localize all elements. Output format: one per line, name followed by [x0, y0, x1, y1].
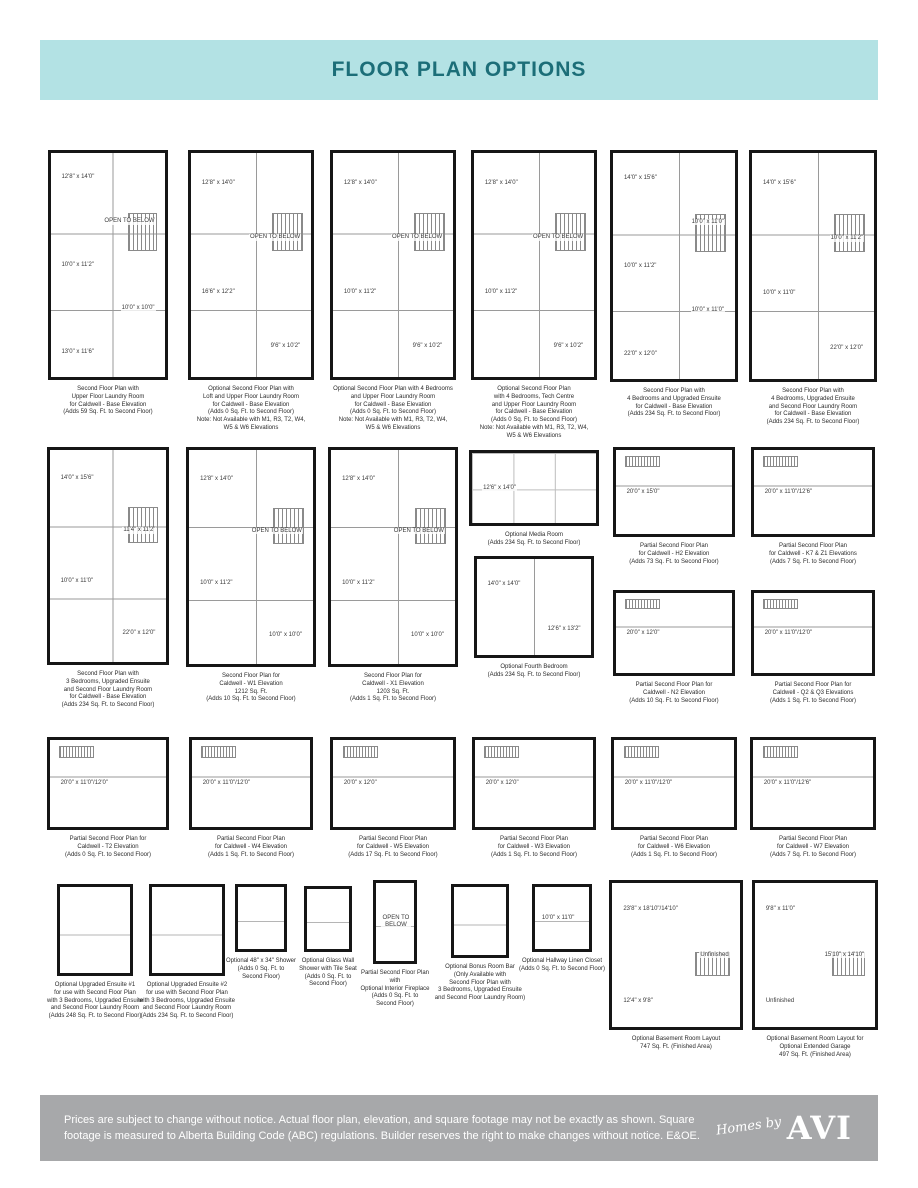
room-dimension-label: 20'0" x 12'0" — [626, 630, 661, 637]
floor-plan-caption: Partial Second Floor Plan for Caldwell -… — [322, 836, 464, 859]
floor-plan-caption: Partial Second Floor Plan for Caldwell -… — [464, 836, 604, 859]
floor-plan-drawing: 20'0" x 11'0"/12'0" — [611, 737, 737, 830]
floor-plan-caption: Optional Second Floor Plan with 4 Bedroo… — [464, 386, 604, 441]
room-dimension-label: 20'0" x 11'0"/12'0" — [624, 780, 673, 787]
floor-plan-drawing: 14'0" x 15'6"11'4" x 11'2"10'0" x 11'0"2… — [47, 447, 169, 665]
floor-plan-caption: Second Floor Plan with 4 Bedrooms, Upgra… — [742, 388, 884, 427]
room-dimension-label: 9'6" x 10'2" — [412, 343, 444, 350]
room-dimension-label: 12'8" x 14'0" — [343, 180, 378, 187]
floor-plan-caption: Optional Bonus Room Bar (Only Available … — [432, 964, 528, 1003]
open-to-below-label: OPEN TO BELOW — [393, 528, 445, 535]
floor-plan-drawing: 10'0" x 11'0" — [532, 884, 592, 952]
floor-plan-drawing: 9'8" x 11'0"15'10" x 14'10"Unfinished — [752, 880, 878, 1030]
room-dimension-label: 10'0" x 11'0" — [691, 219, 725, 226]
floor-plan-cell: 12'8" x 14'0"OPEN TO BELOW10'0" x 11'2"1… — [38, 150, 178, 417]
room-dimension-label: 12'6" x 13'2" — [547, 626, 582, 633]
floor-plan-cell: 23'8" x 18'10"/14'10"Unfinished12'4" x 9… — [606, 880, 746, 1052]
room-dimension-label: 20'0" x 11'0"/12'0" — [764, 630, 813, 637]
floor-plan-drawing: 14'0" x 14'0"12'6" x 13'2" — [474, 556, 594, 658]
floor-plan-cell: 20'0" x 11'0"/12'0" Partial Second Floor… — [180, 737, 322, 859]
open-to-below-label: OPEN TO BELOW — [391, 234, 443, 241]
room-dimension-label: 20'0" x 11'0"/12'0" — [202, 780, 251, 787]
room-dimension-label: 10'0" x 11'2" — [623, 263, 657, 270]
floor-plan-drawing: 12'6" x 14'0" — [469, 450, 599, 526]
floor-plan-cell: 12'8" x 14'0"OPEN TO BELOW16'6" x 12'2"9… — [180, 150, 322, 433]
floor-plan-drawing — [304, 886, 352, 952]
floor-plan-caption: Partial Second Floor Plan for Caldwell -… — [604, 682, 744, 705]
floor-plan-drawing: 20'0" x 12'0" — [330, 737, 456, 830]
floor-plan-cell: 14'0" x 15'6"10'0" x 11'0"10'0" x 11'2"1… — [604, 150, 744, 419]
open-to-below-label: OPEN TO BELOW — [532, 234, 584, 241]
floor-plan-cell: 20'0" x 12'0" Partial Second Floor Plan … — [322, 737, 464, 859]
floor-plan-cell: Optional Glass Wall Shower with Tile Sea… — [292, 886, 364, 989]
floor-plan-caption: Partial Second Floor Plan for Caldwell -… — [742, 682, 884, 705]
floor-plan-caption: Partial Second Floor Plan for Caldwell -… — [742, 836, 884, 859]
floor-plan-caption: Partial Second Floor Plan for Caldwell -… — [38, 836, 178, 859]
room-dimension-label: 10'0" x 11'2" — [341, 580, 375, 587]
floor-plan-caption: Second Floor Plan for Caldwell - W1 Elev… — [180, 673, 322, 704]
floor-plan-drawing: 20'0" x 12'0" — [613, 590, 735, 676]
floor-plan-drawing: 20'0" x 15'0" — [613, 447, 735, 537]
floor-plan-caption: Optional Second Floor Plan with 4 Bedroo… — [322, 386, 464, 433]
page-title: FLOOR PLAN OPTIONS — [332, 58, 587, 82]
disclaimer-text: Prices are subject to change without not… — [64, 1112, 704, 1145]
room-dimension-label: 10'0" x 11'0" — [691, 307, 725, 314]
homes-by-avi-logo: Homes by AVI — [717, 1114, 852, 1143]
room-dimension-label: 20'0" x 12'0" — [343, 780, 378, 787]
room-dimension-label: 23'8" x 18'10"/14'10" — [622, 906, 679, 913]
room-dimension-label: 10'0" x 11'2" — [830, 235, 864, 242]
room-dimension-label: 16'6" x 12'2" — [201, 289, 236, 296]
floor-plan-caption: Partial Second Floor Plan with Optional … — [358, 970, 432, 1009]
floor-plan-cell: 12'6" x 14'0" Optional Media Room (Adds … — [460, 450, 608, 548]
floor-plan-drawing: OPEN TO BELOW — [373, 880, 417, 964]
floor-plan-caption: Optional Glass Wall Shower with Tile Sea… — [292, 958, 364, 989]
unfinished-label: Unfinished — [699, 952, 729, 959]
floor-plan-caption: Optional Basement Room Layout for Option… — [748, 1036, 882, 1059]
room-dimension-label: 20'0" x 15'0" — [626, 489, 661, 496]
floor-plan-cell: 12'8" x 14'0"OPEN TO BELOW10'0" x 11'2"9… — [464, 150, 604, 441]
floor-plan-caption: Partial Second Floor Plan for Caldwell -… — [742, 543, 884, 566]
brochure-page: FLOOR PLAN OPTIONS 12'8" x 14'0"OPEN TO … — [0, 0, 918, 1188]
floor-plan-cell: 20'0" x 11'0"/12'0" Partial Second Floor… — [604, 737, 744, 859]
floor-plan-cell: 12'8" x 14'0"OPEN TO BELOW10'0" x 11'2"1… — [322, 447, 464, 704]
floor-plan-cell: 12'8" x 14'0"OPEN TO BELOW10'0" x 11'2"1… — [180, 447, 322, 704]
floor-plan-drawing: 20'0" x 11'0"/12'6" — [750, 737, 876, 830]
room-dimension-label: 14'0" x 14'0" — [486, 581, 521, 588]
room-dimension-label: 14'0" x 15'6" — [623, 175, 658, 182]
room-dimension-label: 20'0" x 11'0"/12'6" — [763, 780, 812, 787]
floor-plan-cell: 14'0" x 15'6"11'4" x 11'2"10'0" x 11'0"2… — [38, 447, 178, 710]
footer-band: Prices are subject to change without not… — [40, 1095, 878, 1161]
floor-plan-caption: Second Floor Plan with 4 Bedrooms and Up… — [604, 388, 744, 419]
room-dimension-label: 12'6" x 14'0" — [482, 485, 517, 492]
open-to-below-label: OPEN TO BELOW — [103, 218, 155, 225]
floor-plan-cell: 12'8" x 14'0"OPEN TO BELOW10'0" x 11'2"9… — [322, 150, 464, 433]
open-to-below-label: OPEN TO BELOW — [249, 234, 301, 241]
floor-plan-cell: 20'0" x 12'0" Partial Second Floor Plan … — [604, 590, 744, 705]
room-dimension-label: 20'0" x 12'0" — [485, 780, 520, 787]
floor-plan-cell: 14'0" x 15'6"10'0" x 11'2"10'0" x 11'0"2… — [742, 150, 884, 427]
floor-plan-drawing: 14'0" x 15'6"10'0" x 11'2"10'0" x 11'0"2… — [749, 150, 877, 382]
logo-script-text: Homes by — [715, 1115, 782, 1139]
floor-plan-drawing: 12'8" x 14'0"OPEN TO BELOW10'0" x 11'2"1… — [186, 447, 316, 667]
room-dimension-label: 10'0" x 11'2" — [484, 289, 518, 296]
header-band: FLOOR PLAN OPTIONS — [40, 40, 878, 100]
floor-plan-drawing: 12'8" x 14'0"OPEN TO BELOW10'0" x 11'2"1… — [48, 150, 168, 380]
floor-plan-drawing: 20'0" x 11'0"/12'0" — [189, 737, 313, 830]
floor-plan-drawing — [149, 884, 225, 976]
floor-plan-drawing: 20'0" x 11'0"/12'6" — [751, 447, 875, 537]
room-dimension-label: 20'0" x 11'0"/12'6" — [764, 489, 813, 496]
room-dimension-label: 12'4" x 9'8" — [622, 998, 654, 1005]
floor-plan-drawing: 12'8" x 14'0"OPEN TO BELOW10'0" x 11'2"1… — [328, 447, 458, 667]
unfinished-label: Unfinished — [765, 998, 795, 1005]
floor-plan-cell: OPEN TO BELOW Partial Second Floor Plan … — [358, 880, 432, 1009]
floor-plan-caption: Second Floor Plan for Caldwell - X1 Elev… — [322, 673, 464, 704]
room-dimension-label: 10'0" x 11'0" — [762, 290, 796, 297]
floor-plan-drawing: 14'0" x 15'6"10'0" x 11'0"10'0" x 11'2"1… — [610, 150, 738, 382]
room-dimension-label: 10'0" x 11'2" — [343, 289, 377, 296]
floor-plan-drawing — [451, 884, 509, 958]
floor-plan-drawing: 20'0" x 11'0"/12'0" — [47, 737, 169, 830]
room-dimension-label: 14'0" x 15'6" — [60, 475, 95, 482]
floor-plan-caption: Second Floor Plan with 3 Bedrooms, Upgra… — [38, 671, 178, 710]
floor-plan-cell: 20'0" x 11'0"/12'6" Partial Second Floor… — [742, 447, 884, 566]
room-dimension-label: 10'0" x 11'0" — [541, 915, 575, 922]
room-dimension-label: 9'6" x 10'2" — [553, 343, 585, 350]
floor-plan-cell: Optional Bonus Room Bar (Only Available … — [432, 884, 528, 1003]
room-dimension-label: 10'0" x 11'0" — [60, 578, 94, 585]
floor-plan-caption: Optional Upgraded Ensuite #2 for use wit… — [122, 982, 252, 1021]
floor-plan-cell: 20'0" x 11'0"/12'0" Partial Second Floor… — [38, 737, 178, 859]
logo-avi-text: AVI — [787, 1114, 852, 1143]
floor-plan-caption: Optional Basement Room Layout 747 Sq. Ft… — [606, 1036, 746, 1052]
floor-plan-drawing: 23'8" x 18'10"/14'10"Unfinished12'4" x 9… — [609, 880, 743, 1030]
open-to-below-label: OPEN TO BELOW — [381, 915, 411, 929]
room-dimension-label: 9'8" x 11'0" — [765, 906, 796, 913]
room-dimension-label: 12'8" x 14'0" — [199, 476, 234, 483]
floor-plan-caption: Optional Media Room (Adds 234 Sq. Ft. to… — [460, 532, 608, 548]
room-dimension-label: 15'10" x 14'10" — [824, 952, 866, 959]
floor-plan-cell: 14'0" x 14'0"12'6" x 13'2" Optional Four… — [464, 556, 604, 680]
room-dimension-label: 22'0" x 12'0" — [623, 351, 658, 358]
floor-plan-drawing — [235, 884, 287, 952]
floor-plan-cell: 20'0" x 15'0" Partial Second Floor Plan … — [604, 447, 744, 566]
floor-plan-drawing: 20'0" x 11'0"/12'0" — [751, 590, 875, 676]
room-dimension-label: 10'0" x 11'2" — [60, 262, 94, 269]
floor-plan-drawing: 12'8" x 14'0"OPEN TO BELOW10'0" x 11'2"9… — [471, 150, 597, 380]
room-dimension-label: 10'0" x 11'2" — [199, 580, 233, 587]
room-dimension-label: 12'8" x 14'0" — [484, 180, 519, 187]
floor-plan-cell: 10'0" x 11'0" Optional Hallway Linen Clo… — [516, 884, 608, 974]
floor-plan-caption: Partial Second Floor Plan for Caldwell -… — [604, 543, 744, 566]
floor-plan-caption: Optional Second Floor Plan with Loft and… — [180, 386, 322, 433]
room-dimension-label: 22'0" x 12'0" — [122, 630, 157, 637]
room-dimension-label: 10'0" x 10'0" — [410, 632, 445, 639]
floor-plan-caption: Optional 48" x 34" Shower (Adds 0 Sq. Ft… — [222, 958, 300, 981]
floor-plan-cell: 20'0" x 12'0" Partial Second Floor Plan … — [464, 737, 604, 859]
room-dimension-label: 22'0" x 12'0" — [829, 345, 864, 352]
room-dimension-label: 20'0" x 11'0"/12'0" — [60, 780, 109, 787]
room-dimension-label: 12'8" x 14'0" — [201, 180, 236, 187]
floor-plan-drawing: 20'0" x 12'0" — [472, 737, 596, 830]
room-dimension-label: 11'4" x 11'2" — [122, 527, 156, 534]
room-dimension-label: 10'0" x 10'0" — [268, 632, 303, 639]
floor-plan-caption: Partial Second Floor Plan for Caldwell -… — [604, 836, 744, 859]
floor-plan-drawing: 12'8" x 14'0"OPEN TO BELOW16'6" x 12'2"9… — [188, 150, 314, 380]
room-dimension-label: 14'0" x 15'6" — [762, 180, 797, 187]
room-dimension-label: 10'0" x 10'0" — [121, 305, 156, 312]
room-dimension-label: 9'6" x 10'2" — [270, 343, 302, 350]
room-dimension-label: 13'0" x 11'6" — [60, 349, 94, 356]
floor-plan-cell: 20'0" x 11'0"/12'6" Partial Second Floor… — [742, 737, 884, 859]
floor-plan-caption: Optional Fourth Bedroom (Adds 234 Sq. Ft… — [464, 664, 604, 680]
floor-plan-caption: Second Floor Plan with Upper Floor Laund… — [38, 386, 178, 417]
floor-plan-caption: Optional Hallway Linen Closet (Adds 0 Sq… — [516, 958, 608, 974]
floor-plan-cell: 20'0" x 11'0"/12'0" Partial Second Floor… — [742, 590, 884, 705]
room-dimension-label: 12'8" x 14'0" — [60, 174, 95, 181]
room-dimension-label: 12'8" x 14'0" — [341, 476, 376, 483]
floor-plan-caption: Partial Second Floor Plan for Caldwell -… — [180, 836, 322, 859]
floor-plan-cell: 9'8" x 11'0"15'10" x 14'10"Unfinished Op… — [748, 880, 882, 1059]
open-to-below-label: OPEN TO BELOW — [251, 528, 303, 535]
floor-plan-drawing: 12'8" x 14'0"OPEN TO BELOW10'0" x 11'2"9… — [330, 150, 456, 380]
floor-plan-cell: Optional 48" x 34" Shower (Adds 0 Sq. Ft… — [222, 884, 300, 981]
